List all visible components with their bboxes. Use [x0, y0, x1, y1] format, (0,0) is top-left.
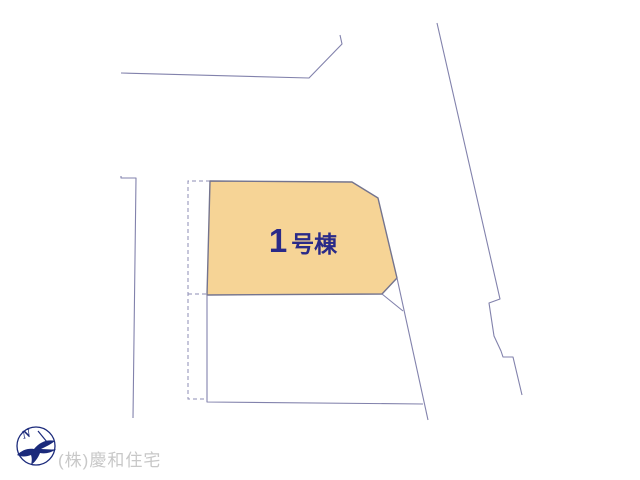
compass-icon: N [17, 425, 56, 465]
southeast-road-edge-line [397, 278, 428, 420]
north-needle-icon [38, 431, 47, 442]
lot-2-boundary-line [207, 294, 423, 404]
company-watermark: (株)慶和住宅 [58, 451, 161, 470]
plot-map-canvas: 1号棟 N (株)慶和住宅 [0, 0, 640, 480]
lot-1-suffix: 号棟 [291, 231, 338, 257]
plot-map-drawing: 1号棟 N (株)慶和住宅 [0, 0, 640, 480]
top-road-boundary-line [121, 35, 342, 78]
bird-silhouette-icon [17, 440, 56, 465]
left-boundary-line [121, 176, 136, 418]
lot-1-number: 1 [269, 222, 287, 259]
right-road-boundary-line [437, 23, 522, 395]
